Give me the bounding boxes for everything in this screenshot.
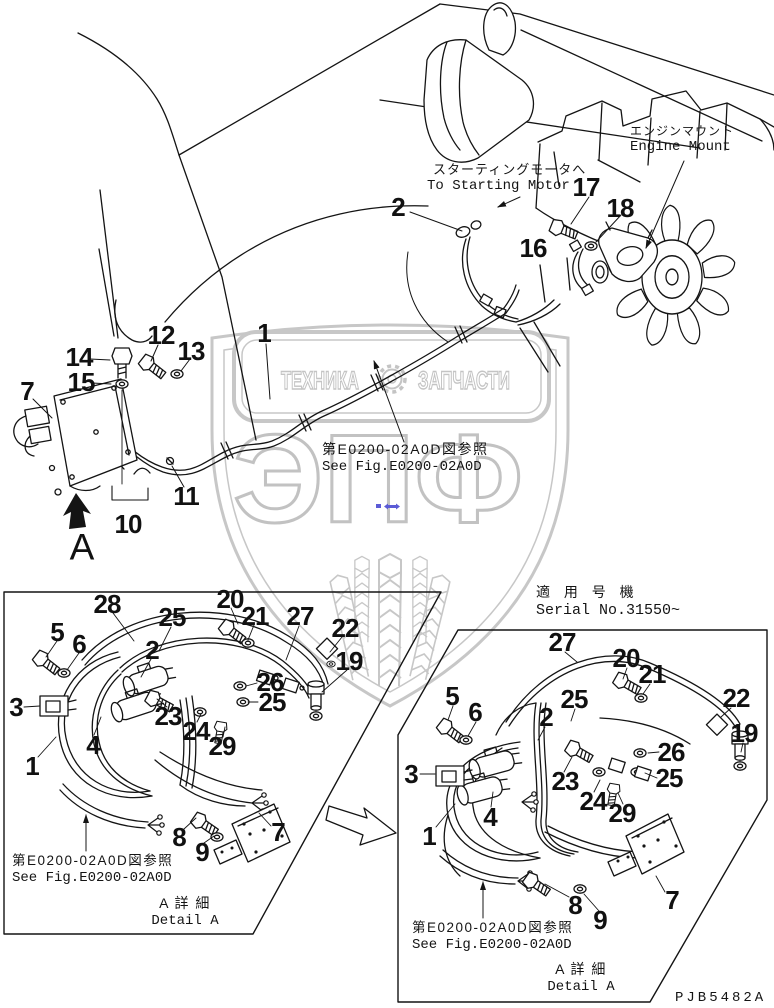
bolt-14-head — [112, 348, 132, 364]
see-fig-left-en: See Fig.E0200-02A0D — [12, 870, 173, 888]
see-fig-right-en: See Fig.E0200-02A0D — [412, 937, 573, 955]
connector-3 — [40, 696, 68, 716]
parts-diagram-page: ТЕХНИКА ЗАПЧАСТИ ЭПФ — [0, 0, 774, 1008]
see-fig-reference-right: 第E0200-02A0D図参照 See Fig.E0200-02A0D — [412, 920, 573, 954]
detail-left-art — [24, 608, 347, 864]
view-a-arrow — [63, 493, 91, 529]
detail-a-left-jp: A 詳 細 — [140, 895, 230, 913]
bracket-10-callout — [112, 486, 148, 500]
bolt-17 — [548, 218, 579, 243]
see-fig-left-jp: 第E0200-02A0D図参照 — [12, 853, 173, 870]
starting-motor-connector — [407, 220, 560, 342]
washer-15 — [116, 380, 128, 388]
watermark-text-left: ТЕХНИКА — [281, 367, 359, 395]
serial-number-label: 適 用 号 機 Serial No.31550~ — [536, 584, 680, 620]
see-fig-main-en: See Fig.E0200-02A0D — [322, 459, 488, 477]
see-fig-right-jp: 第E0200-02A0D図参照 — [412, 920, 573, 937]
detail-a-right-en: Detail A — [536, 979, 626, 997]
engine-mount-label-jp: エンジンマウント — [630, 124, 734, 139]
detail-a-right-jp: A 詳 細 — [536, 961, 626, 979]
diamond-22-right — [706, 714, 727, 735]
drawing-code: PJB5482A — [675, 990, 766, 1008]
muffler — [424, 3, 533, 162]
watermark-brand: ЭПФ — [233, 410, 523, 549]
detail-transition-arrow — [326, 806, 396, 845]
starting-motor-label: スターティングモータへ To Starting Motor — [427, 162, 586, 196]
starting-motor-label-jp: スターティングモータへ — [427, 162, 586, 178]
see-fig-reference-left: 第E0200-02A0D図参照 See Fig.E0200-02A0D — [12, 853, 173, 887]
serial-label-jp: 適 用 号 機 — [536, 584, 680, 602]
engine-mount-label-en: Engine Mount — [630, 139, 734, 157]
see-fig-main-jp: 第E0200-02A0D図参照 — [322, 441, 488, 459]
see-fig-reference-main: 第E0200-02A0D図参照 See Fig.E0200-02A0D — [322, 441, 488, 476]
washer-18 — [585, 242, 597, 250]
starting-motor-label-en: To Starting Motor — [427, 178, 586, 196]
detail-right-art — [420, 652, 748, 918]
watermark-text-right: ЗАПЧАСТИ — [418, 367, 510, 395]
engine-mount-label: エンジンマウント Engine Mount — [630, 124, 734, 157]
serial-label-en: Serial No.31550~ — [536, 602, 680, 621]
bracket-part-7 — [14, 348, 183, 500]
detail-a-left-en: Detail A — [140, 913, 230, 931]
detail-a-title-right: A 詳 細 Detail A — [536, 961, 626, 996]
exhaust-pipe — [484, 3, 516, 55]
connector-3-right — [436, 766, 464, 786]
detail-a-title-left: A 詳 細 Detail A — [140, 895, 230, 930]
